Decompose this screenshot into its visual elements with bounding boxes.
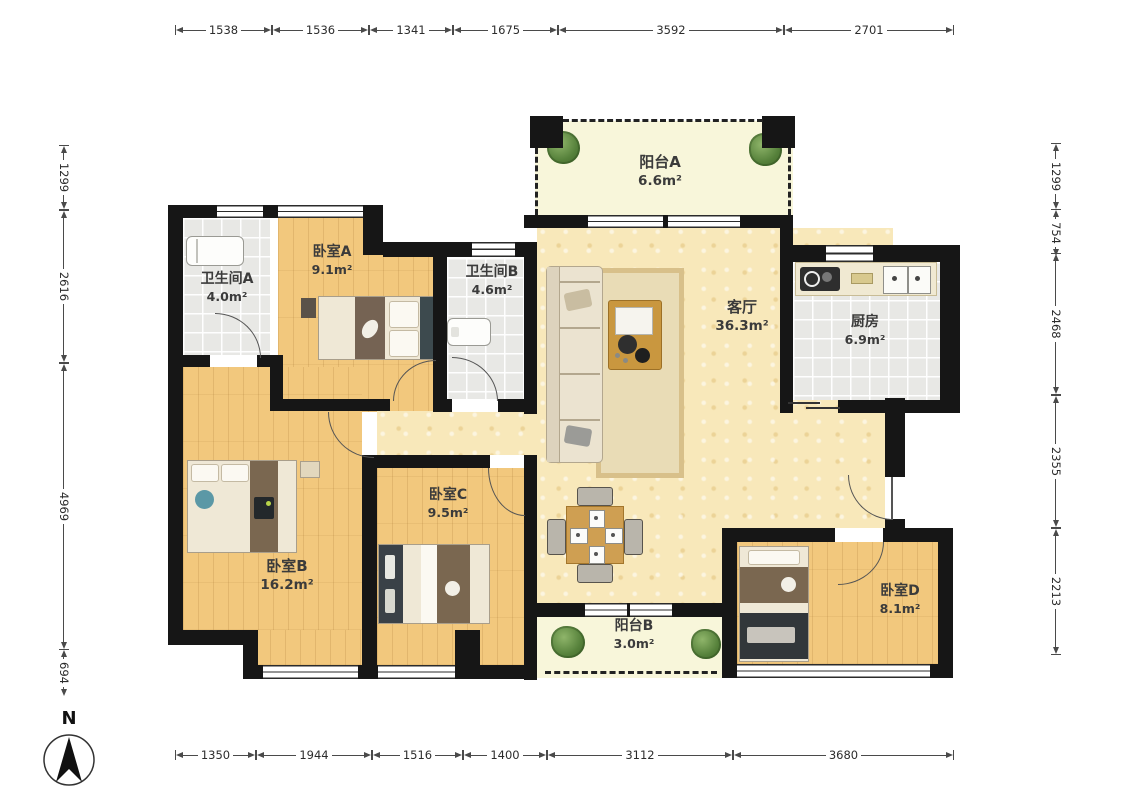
balcony-a-railing (563, 119, 763, 122)
pillow (191, 464, 219, 482)
dim-top-1: 1538 (175, 22, 272, 38)
sheet-stripe (421, 545, 437, 623)
wall (530, 116, 563, 148)
place-setting (605, 528, 623, 544)
label-bedroom-a: 卧室A 9.1m² (272, 243, 392, 279)
dim-value: 1536 (303, 23, 338, 37)
balcony-sliding-door (668, 215, 740, 228)
room-name: 卧室D (840, 582, 960, 601)
label-living-room: 客厅 36.3m² (682, 297, 802, 335)
window (826, 245, 873, 262)
window (263, 665, 358, 679)
cup (615, 353, 620, 358)
footboard-bench (740, 613, 808, 659)
dim-value: 2616 (57, 269, 71, 304)
dim-value: 3112 (622, 748, 657, 762)
dining-chair (577, 487, 613, 506)
bed-device (254, 497, 274, 519)
room-area: 9.5m² (388, 505, 508, 522)
dim-value: 1341 (393, 23, 428, 37)
nightstand (300, 461, 320, 478)
balcony-a-railing (788, 148, 791, 215)
sofa-icon (546, 266, 603, 463)
sofa-seam (560, 373, 600, 375)
sink-icon (883, 266, 931, 294)
dim-bottom-3: 1516 (372, 747, 463, 763)
dim-left-3: 4969 (56, 363, 72, 650)
label-bathroom-b: 卫生间B 4.6m² (432, 263, 552, 299)
sofa-seam (560, 419, 600, 421)
dim-value: 1350 (198, 748, 233, 762)
window (278, 205, 363, 218)
dim-left-4: 694 (56, 650, 72, 692)
wall (885, 398, 905, 542)
duvet (437, 545, 470, 623)
label-kitchen: 厨房 6.9m² (805, 313, 925, 349)
wall (455, 630, 480, 670)
dining-chair (577, 564, 613, 583)
room-area: 9.1m² (272, 262, 392, 279)
dim-value: 1299 (57, 160, 71, 195)
bed-a-icon (318, 296, 437, 360)
dim-value: 754 (1049, 219, 1063, 247)
room-area: 4.6m² (432, 282, 552, 299)
door-leaf-entrance (891, 477, 893, 519)
floor-hallway (377, 411, 537, 457)
window (378, 665, 455, 679)
wall (762, 116, 795, 148)
dim-value: 1538 (206, 23, 241, 37)
pillow (385, 589, 395, 613)
room-name: 卧室A (272, 243, 392, 262)
room-name: 阳台A (600, 152, 720, 172)
window (217, 205, 263, 218)
dim-top-3: 1341 (369, 22, 453, 38)
kitchen-sliding-door (806, 407, 840, 409)
wall (793, 245, 960, 262)
sofa-seam (560, 327, 600, 329)
washbasin-icon (447, 318, 491, 346)
throw-pillow (563, 288, 592, 311)
round-cushion (195, 490, 214, 509)
coffee-table-icon (608, 300, 662, 370)
room-area: 6.9m² (805, 332, 925, 349)
room-name: 卧室C (388, 486, 508, 505)
pillow-deco (781, 577, 796, 592)
pillow (389, 301, 419, 328)
pillow (385, 555, 395, 579)
bathtub-divider (196, 239, 198, 263)
door-opening (835, 528, 883, 542)
dim-value: 1516 (400, 748, 435, 762)
bowl (635, 348, 650, 363)
dim-value: 1944 (296, 748, 331, 762)
stove-icon (800, 267, 840, 291)
dining-chair (547, 519, 566, 555)
label-balcony-a: 阳台A 6.6m² (600, 152, 720, 190)
room-name: 卫生间B (432, 263, 552, 282)
room-name: 客厅 (682, 297, 802, 317)
kitchen-sliding-door (788, 402, 820, 404)
dim-value: 1400 (487, 748, 522, 762)
pillow (389, 330, 419, 357)
room-area: 36.3m² (682, 317, 802, 335)
bathtub-icon (186, 236, 244, 266)
dim-bottom-5: 3112 (547, 747, 733, 763)
pillow (221, 464, 249, 482)
floor-plan-canvas: 1538 1536 1341 1675 3592 2701 1350 1944 … (0, 0, 1125, 800)
place-setting (589, 546, 605, 564)
dim-bottom-2: 1944 (256, 747, 372, 763)
balcony-sliding-door (585, 603, 627, 617)
dim-value: 2213 (1049, 574, 1063, 609)
room-area: 4.0m² (167, 289, 287, 306)
bed-d-icon (739, 546, 809, 662)
drain (892, 276, 897, 281)
dim-value: 4969 (57, 489, 71, 524)
dim-top-5: 3592 (558, 22, 784, 38)
dim-value: 2355 (1049, 444, 1063, 479)
room-name: 卧室B (227, 556, 347, 576)
wall (362, 455, 377, 665)
dim-top-2: 1536 (272, 22, 369, 38)
floor-bedroom-b (255, 630, 362, 665)
room-name: 卫生间A (167, 270, 287, 289)
counter-item (851, 273, 873, 284)
pillow-deco (445, 581, 460, 596)
label-bathroom-a: 卫生间A 4.0m² (167, 270, 287, 306)
burner (822, 272, 832, 282)
dim-value: 2468 (1049, 306, 1063, 341)
dim-value: 3592 (653, 23, 688, 37)
room-area: 3.0m² (574, 636, 694, 653)
cup (623, 358, 628, 363)
balcony-sliding-door (588, 215, 663, 228)
kitchen-counter (795, 262, 937, 296)
dim-bottom-1: 1350 (175, 747, 256, 763)
dim-value: 1299 (1049, 159, 1063, 194)
sofa-seam (560, 281, 600, 283)
throw-pillow (564, 425, 593, 447)
dim-right-5: 2213 (1048, 528, 1064, 655)
room-area: 16.2m² (227, 576, 347, 594)
wall (270, 399, 390, 411)
balcony-b-railing (545, 671, 717, 674)
dim-value: 694 (57, 659, 71, 687)
pillow (748, 550, 800, 565)
dim-value: 2701 (851, 23, 886, 37)
pillow-deco (359, 317, 382, 341)
dim-right-4: 2355 (1048, 395, 1064, 528)
wall (524, 455, 537, 680)
compass-north-label: N (61, 708, 76, 729)
bench-cushion (747, 627, 795, 643)
dim-top-6: 2701 (784, 22, 954, 38)
place-setting (570, 528, 588, 544)
window (472, 242, 515, 257)
bed-b-icon (187, 460, 297, 553)
plant-icon (691, 629, 721, 659)
label-balcony-b: 阳台B 3.0m² (574, 617, 694, 653)
nightstand (301, 298, 316, 318)
room-name: 厨房 (805, 313, 925, 332)
compass-north-icon: N (38, 706, 100, 794)
dim-left-2: 2616 (56, 210, 72, 363)
balcony-a-railing (535, 148, 538, 215)
basin-fixture (451, 327, 459, 337)
dim-left-1: 1299 (56, 145, 72, 210)
kettle (618, 335, 637, 354)
place-setting (589, 510, 605, 528)
balcony-sliding-door (630, 603, 672, 617)
room-name: 阳台B (574, 617, 694, 636)
dim-right-3: 2468 (1048, 253, 1064, 395)
room-area: 6.6m² (600, 172, 720, 190)
dim-right-2: 754 (1048, 210, 1064, 253)
dining-chair (624, 519, 643, 555)
duvet (355, 297, 385, 359)
dim-value: 3680 (826, 748, 861, 762)
door-opening (490, 455, 524, 468)
tray (615, 307, 653, 335)
bed-c-icon (378, 544, 490, 624)
label-bedroom-d: 卧室D 8.1m² (840, 582, 960, 618)
dim-right-1: 1299 (1048, 143, 1064, 210)
window (737, 664, 930, 678)
sink-divider (907, 267, 909, 293)
label-bedroom-b: 卧室B 16.2m² (227, 556, 347, 594)
dim-value: 1675 (488, 23, 523, 37)
duvet (740, 567, 808, 603)
room-area: 8.1m² (840, 601, 960, 618)
burner (804, 271, 820, 287)
dining-table-icon (566, 506, 624, 564)
dim-top-4: 1675 (453, 22, 558, 38)
dim-bottom-4: 1400 (463, 747, 547, 763)
label-bedroom-c: 卧室C 9.5m² (388, 486, 508, 522)
headboard (379, 545, 403, 623)
dim-bottom-6: 3680 (733, 747, 954, 763)
drain (915, 276, 920, 281)
wall (940, 245, 960, 413)
